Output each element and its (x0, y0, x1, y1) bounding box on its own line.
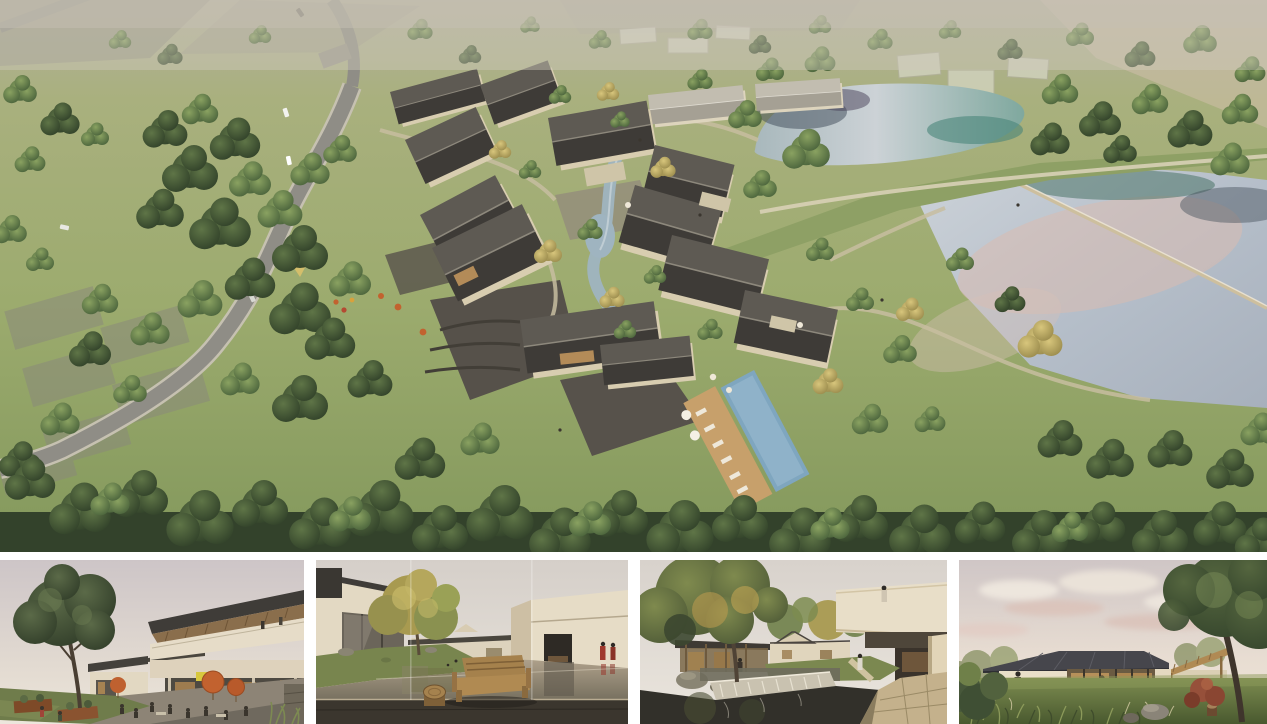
roof-terrace-visitor (882, 586, 888, 602)
log-stool (424, 685, 446, 706)
thumbnail-lawn-pavilion: Dusk rendering of a single-storey glass … (959, 560, 1267, 724)
thumbnail-retail-lane: Street-level rendering of the village re… (0, 560, 304, 724)
balcony-person (261, 621, 265, 629)
glass-pavilion (675, 640, 770, 672)
right-guesthouses (511, 590, 628, 668)
thumbnail-water-courtyard: Courtyard rendering with a shallow refle… (316, 560, 628, 724)
aerial-rendering-image: Bird's-eye rendering of a courtyard-hous… (0, 0, 1267, 552)
balcony-person (279, 617, 283, 625)
horizon-haze (0, 0, 1267, 70)
collage-canvas: Bird's-eye rendering of a courtyard-hous… (0, 0, 1267, 724)
thumbnail-garden-weir: Garden courtyard rendering with a large … (640, 560, 947, 724)
